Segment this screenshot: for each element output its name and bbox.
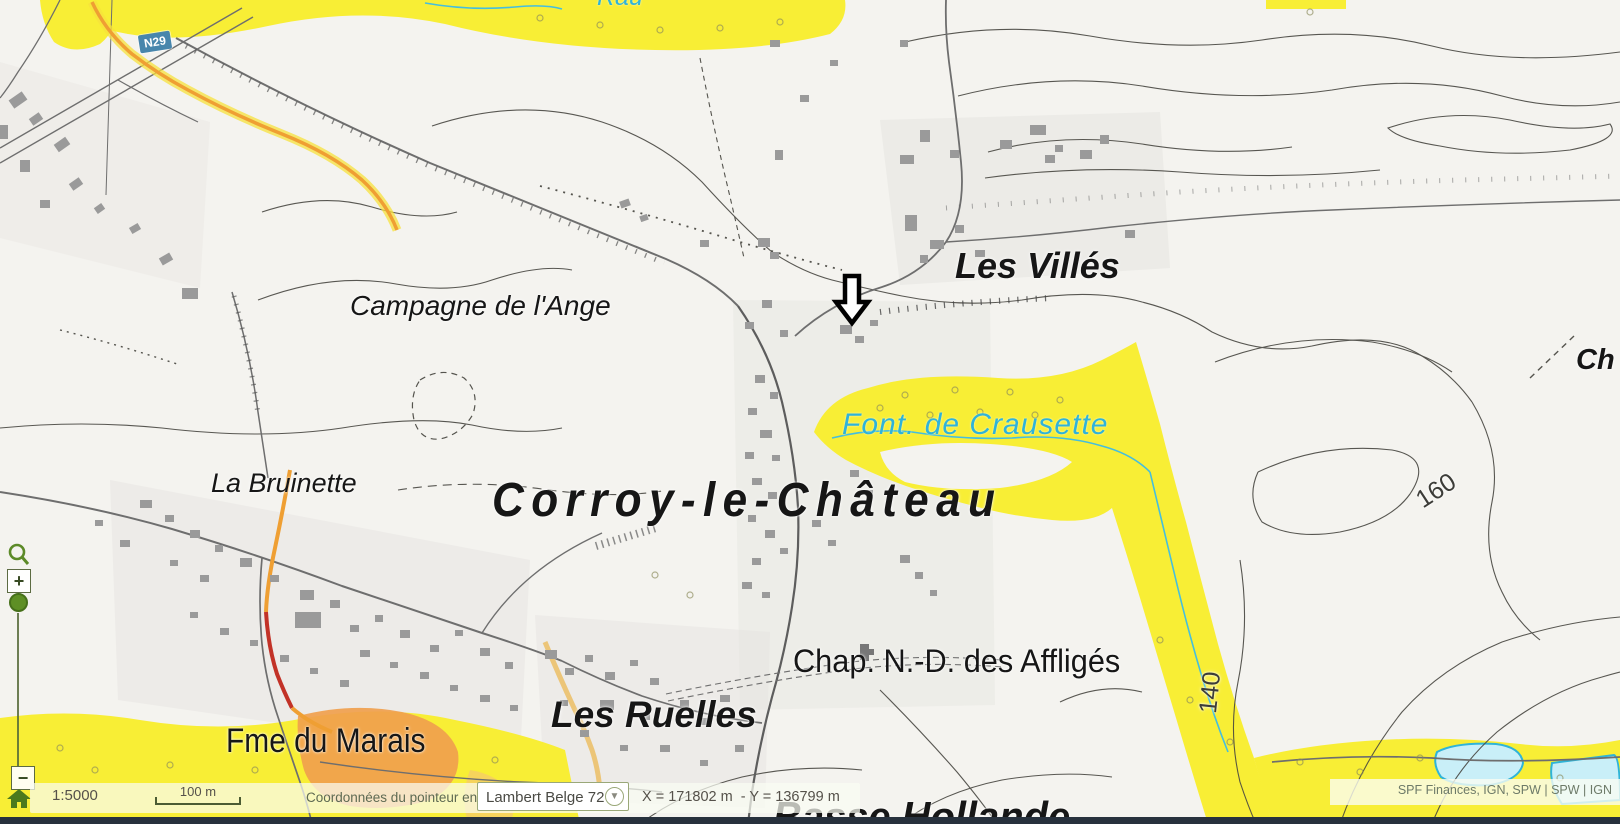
label-corroy-le-chateau: Corroy-le-Château bbox=[492, 477, 1002, 525]
window-bottom-edge bbox=[0, 817, 1620, 824]
home-button[interactable] bbox=[7, 789, 31, 809]
pointer-coords-label: Coordonnées du pointeur en bbox=[306, 790, 477, 805]
home-icon bbox=[7, 789, 31, 809]
map-canvas[interactable] bbox=[0, 0, 1620, 824]
crs-select[interactable]: Lambert Belge 72 ▼ bbox=[477, 782, 629, 811]
scale-bar bbox=[155, 797, 241, 805]
label-contour-140: 140 bbox=[1196, 671, 1225, 715]
chevron-down-icon[interactable]: ▼ bbox=[605, 787, 624, 806]
pointer-coordinates: X = 171802 m - Y = 136799 m bbox=[642, 789, 840, 805]
zoom-slider-knob[interactable] bbox=[9, 593, 28, 612]
label-les-villes: Les Villés bbox=[955, 248, 1120, 284]
zoom-tool-icon[interactable] bbox=[7, 542, 31, 568]
attribution-text: SPF Finances, IGN, SPW | SPW | IGN bbox=[1330, 783, 1612, 797]
label-campagne-de-l-ange: Campagne de l'Ange bbox=[350, 292, 611, 320]
label-edge-partial-top: Rau bbox=[597, 0, 643, 10]
crs-selected-value: Lambert Belge 72 bbox=[486, 789, 604, 806]
label-edge-partial-right: Ch bbox=[1576, 346, 1615, 375]
label-les-ruelles: Les Ruelles bbox=[551, 696, 757, 733]
label-la-bruinette: La Bruinette bbox=[211, 470, 357, 497]
map-viewport: Campagne de l'Ange Les Villés La Bruinet… bbox=[0, 0, 1620, 824]
label-chapelle-nd-des-affliges: Chap. N.-D. des Affligés bbox=[793, 645, 1120, 677]
label-fme-du-marais: Fme du Marais bbox=[226, 724, 426, 758]
label-font-de-crausette: Font. de Crausette bbox=[842, 410, 1108, 440]
zoom-in-button[interactable]: + bbox=[7, 569, 31, 593]
zoom-slider-track bbox=[17, 613, 19, 766]
scale-label: 1:5000 bbox=[52, 787, 98, 804]
